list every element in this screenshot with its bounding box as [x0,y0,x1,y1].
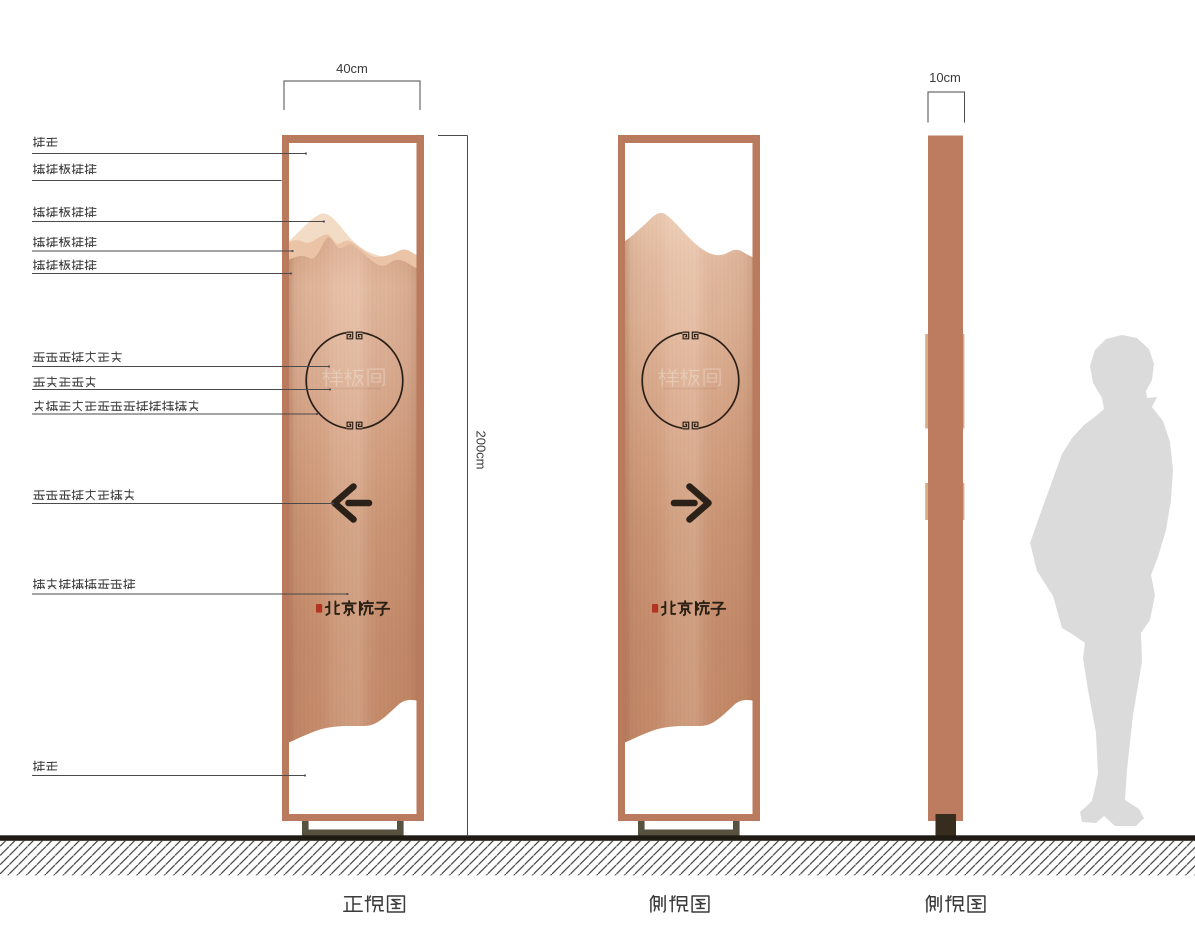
svg-text:10cm: 10cm [929,70,961,85]
svg-text:40cm: 40cm [336,61,368,76]
svg-text:200cm: 200cm [474,430,489,469]
